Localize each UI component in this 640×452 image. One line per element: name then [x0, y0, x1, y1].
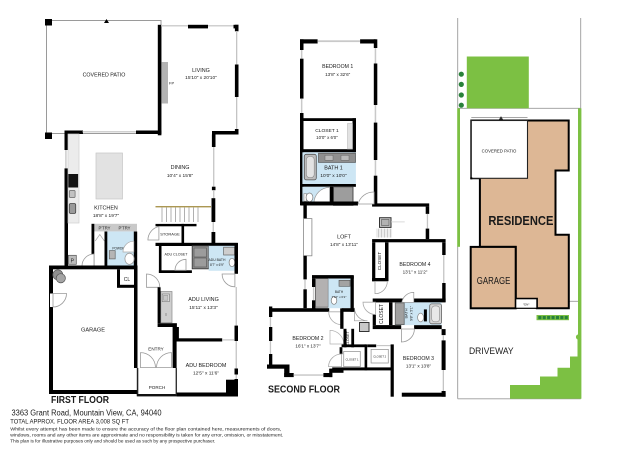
svg-text:ADU BATH: ADU BATH	[209, 258, 226, 262]
svg-text:TOTAL APPROX. FLOOR AREA 3,008: TOTAL APPROX. FLOOR AREA 3,008 SQ FT	[10, 419, 129, 426]
svg-text:3363 Grant Road, Mountain View: 3363 Grant Road, Mountain View, CA, 9404…	[12, 409, 163, 418]
svg-text:P'TRY: P'TRY	[99, 226, 111, 231]
svg-text:FIRST FLOOR: FIRST FLOOR	[51, 395, 109, 406]
svg-text:CLOSET: CLOSET	[346, 331, 350, 346]
svg-text:15'11" x 13'3": 15'11" x 13'3"	[189, 305, 218, 311]
svg-text:BATH: BATH	[404, 308, 409, 318]
svg-text:GARAGE: GARAGE	[81, 327, 105, 333]
svg-text:LIVING: LIVING	[192, 68, 210, 74]
svg-text:KITCHEN: KITCHEN	[94, 205, 118, 211]
svg-text:DINING: DINING	[171, 165, 190, 171]
svg-text:P'TRY: P'TRY	[119, 226, 131, 231]
svg-text:Whilst every attempt has been: Whilst every attempt has been made to en…	[10, 427, 281, 432]
svg-text:10'0" x 6'0": 10'0" x 6'0"	[316, 135, 338, 140]
svg-text:CLOSET 1: CLOSET 1	[346, 357, 359, 361]
svg-text:CLOSET: CLOSET	[377, 252, 382, 271]
svg-text:CLOSET 2: CLOSET 2	[373, 355, 386, 359]
svg-text:CL: CL	[124, 277, 131, 283]
svg-text:9'8" x 5'1": 9'8" x 5'1"	[410, 305, 414, 321]
svg-text:BEDROOM 3: BEDROOM 3	[403, 356, 434, 362]
svg-text:FP: FP	[169, 81, 174, 86]
svg-text:COVERED PATIO: COVERED PATIO	[482, 149, 517, 154]
svg-text:BATH: BATH	[335, 290, 344, 294]
svg-text:14'8" x 13'11": 14'8" x 13'11"	[330, 242, 358, 247]
svg-text:7'10" x 6'2": 7'10" x 6'2"	[332, 295, 347, 299]
svg-text:13'1" x 11'2": 13'1" x 11'2"	[403, 269, 428, 274]
svg-text:PORCH: PORCH	[149, 385, 166, 390]
svg-text:GARAGE: GARAGE	[477, 276, 511, 287]
svg-text:16'1" x 13'7": 16'1" x 13'7"	[295, 343, 321, 348]
svg-text:DRIVEWAY: DRIVEWAY	[469, 346, 514, 356]
svg-text:BEDROOM 4: BEDROOM 4	[399, 262, 430, 268]
svg-text:BEDROOM 1: BEDROOM 1	[322, 64, 353, 70]
svg-text:10'0" x 10'0": 10'0" x 10'0"	[320, 173, 347, 179]
svg-text:8'7" x 6'9": 8'7" x 6'9"	[210, 263, 224, 267]
svg-text:15'10" x 20'10": 15'10" x 20'10"	[185, 75, 217, 81]
svg-text:13'8" x 32'6": 13'8" x 32'6"	[325, 72, 351, 77]
svg-text:12'5" x 11'6": 12'5" x 11'6"	[193, 371, 219, 377]
svg-text:ADU BEDROOM: ADU BEDROOM	[186, 363, 227, 369]
svg-text:10'4" x 15'8": 10'4" x 15'8"	[167, 173, 194, 179]
svg-text:ADU LIVING: ADU LIVING	[188, 297, 219, 303]
svg-text:BATH 1: BATH 1	[324, 166, 342, 172]
svg-text:BEDROOM 2: BEDROOM 2	[292, 336, 323, 342]
svg-text:This plan is for illustrative: This plan is for illustrative purposes o…	[10, 439, 215, 444]
svg-text:LOFT: LOFT	[337, 234, 351, 240]
svg-text:ADU CLOSET: ADU CLOSET	[165, 253, 189, 257]
svg-text:SECOND FLOOR: SECOND FLOOR	[268, 385, 340, 396]
svg-text:ENTRY: ENTRY	[148, 347, 164, 352]
svg-text:13'1" x 13'8": 13'1" x 13'8"	[406, 363, 432, 368]
svg-text:windows, rooms and any other i: windows, rooms and any other items are a…	[10, 433, 283, 438]
svg-text:RESIDENCE: RESIDENCE	[488, 213, 553, 228]
svg-text:STORAGE: STORAGE	[160, 232, 180, 237]
svg-text:CLOSET: CLOSET	[379, 304, 385, 324]
svg-text:COVERED PATIO: COVERED PATIO	[83, 72, 126, 78]
svg-text:CLOSET 1: CLOSET 1	[315, 128, 339, 134]
svg-text:18'8" x 19'7": 18'8" x 19'7"	[93, 213, 120, 219]
svg-text:*DN*: *DN*	[523, 303, 530, 307]
